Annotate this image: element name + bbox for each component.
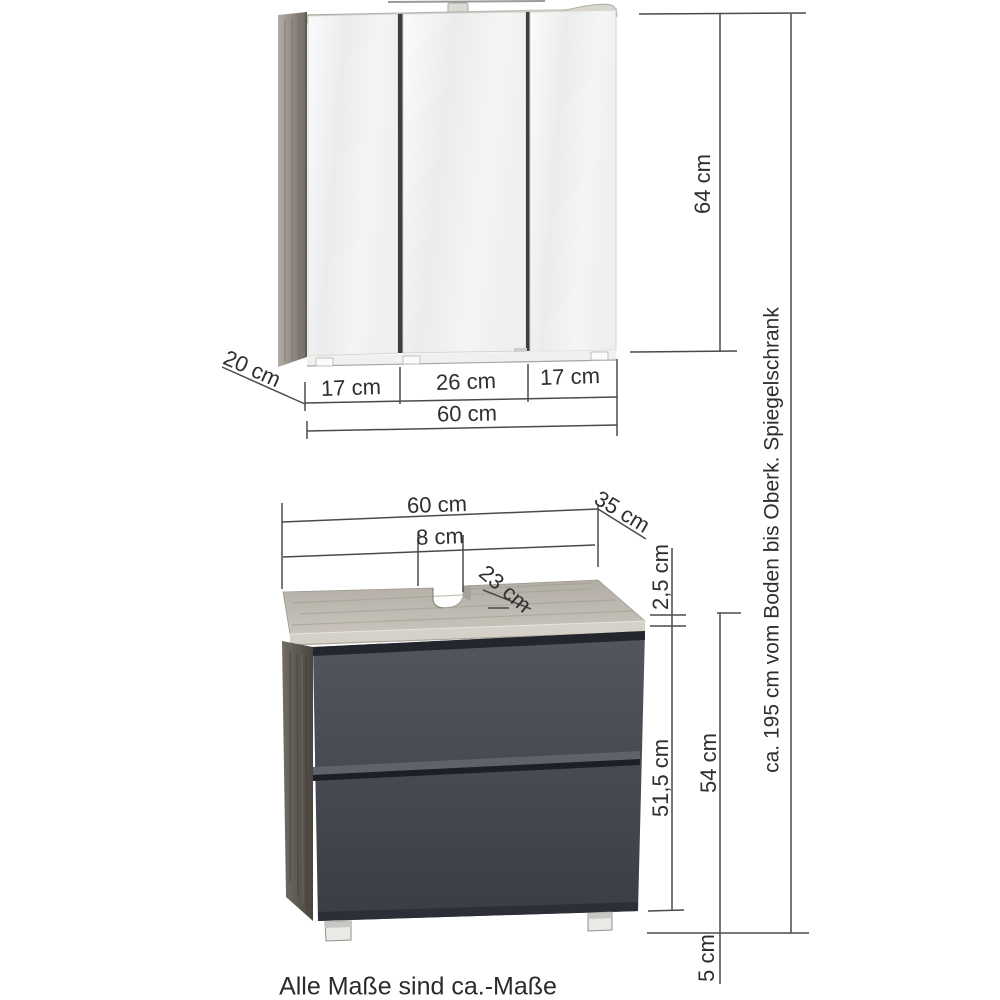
- footnote: Alle Maße sind ca.-Maße: [279, 975, 557, 1000]
- mirror-door-left: [308, 14, 398, 356]
- diagram-drawing: [0, 0, 1000, 1000]
- vanity-width-label: 60 cm: [407, 493, 468, 517]
- door-divider-right: [526, 12, 530, 351]
- body-height-label: 54 cm: [698, 733, 720, 793]
- mirror-height-label: 64 cm: [692, 154, 714, 214]
- overall-height-label: ca. 195 cm vom Boden bis Oberk. Spiegels…: [762, 307, 783, 773]
- mirror-door-middle: [403, 12, 526, 353]
- tick: [639, 13, 806, 14]
- vanity-cabinet: [282, 580, 645, 941]
- cutout-offset-label: 8 cm: [416, 525, 464, 549]
- tick: [648, 910, 684, 911]
- door-handle-right: [591, 352, 608, 360]
- vanity-foot-right-shade: [588, 912, 612, 919]
- mirror-cabinet: [278, 1, 617, 367]
- door-divider-left: [398, 14, 403, 353]
- front-height-label: 51,5 cm: [650, 739, 672, 817]
- door-handle-middle: [403, 356, 420, 364]
- mirror-door-right: [530, 10, 616, 352]
- feet-height-label: 5 cm: [696, 934, 718, 982]
- mirror-width-label: 60 cm: [437, 402, 497, 425]
- lamp-bar: [388, 1, 545, 2]
- top-thickness-label: 2,5 cm: [650, 544, 672, 610]
- furniture-dimension-diagram: 20 cm 17 cm 26 cm 17 cm 60 cm 64 cm ca. …: [0, 0, 1000, 1000]
- mirror-door-left-label: 17 cm: [321, 376, 382, 400]
- tick: [630, 351, 737, 352]
- door-handle-left: [316, 358, 333, 366]
- vanity-foot-left-shade: [325, 921, 351, 928]
- mirror-door-middle-label: 26 cm: [436, 370, 497, 394]
- mirror-door-right-label: 17 cm: [540, 365, 601, 389]
